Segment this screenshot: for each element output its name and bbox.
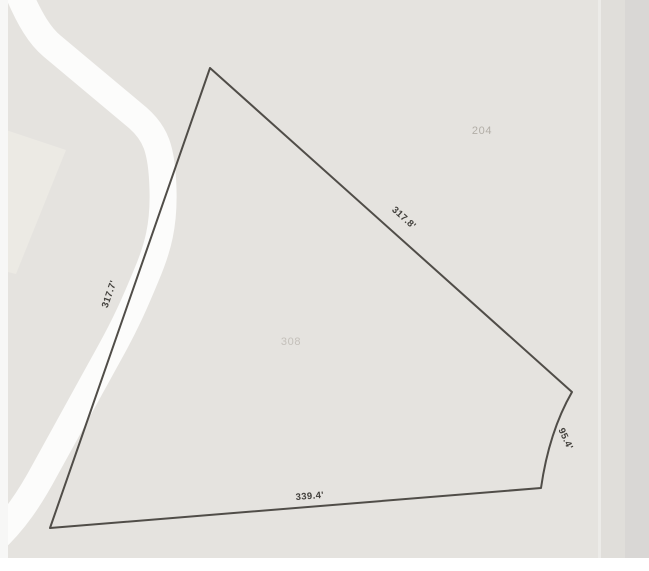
parcel-number-north: 204 <box>472 125 492 137</box>
parcel-number-main: 308 <box>281 336 301 348</box>
right-edge-strip-outer <box>625 0 649 571</box>
bottom-edge-margin <box>0 558 649 571</box>
parcel-map-canvas: 317.8' 317.7' 339.4' 95.4' 204 308 <box>0 0 649 571</box>
right-edge-strip-inner <box>601 0 625 571</box>
left-edge-margin <box>0 0 8 571</box>
dimension-label-south: 339.4' <box>295 490 324 503</box>
right-edge-seam <box>598 0 601 571</box>
parcel-map-viewport[interactable]: 317.8' 317.7' 339.4' 95.4' 204 308 <box>0 0 649 571</box>
